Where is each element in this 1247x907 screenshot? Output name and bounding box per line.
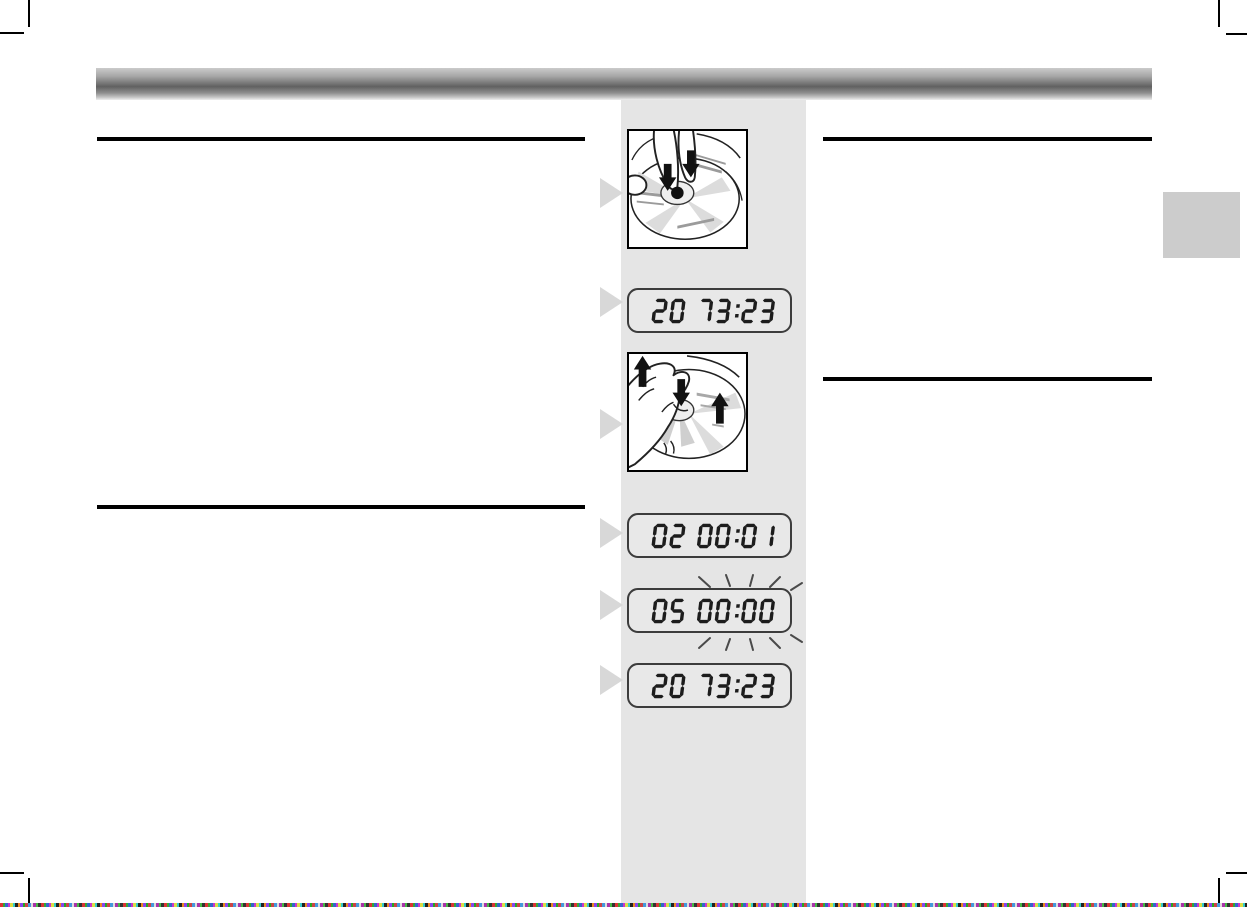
header-bar — [96, 68, 1152, 100]
insert-disc-illustration — [627, 129, 748, 249]
lcd-screen — [651, 297, 776, 324]
section-rule — [823, 377, 1152, 381]
section-rule — [97, 505, 585, 509]
remove-disc-art — [629, 354, 746, 470]
lcd-display — [627, 513, 792, 558]
lcd-screen — [651, 522, 776, 549]
seven-segment-readout — [651, 298, 776, 324]
crop-mark — [0, 32, 24, 34]
section-rule — [823, 137, 1152, 141]
step-arrow-icon — [600, 287, 623, 317]
step-arrow-icon — [600, 665, 623, 695]
page-edge-tab — [1163, 192, 1240, 258]
manual-page — [0, 0, 1247, 907]
seven-segment-readout — [651, 673, 776, 699]
insert-disc-art — [629, 131, 746, 247]
crop-mark — [0, 872, 24, 874]
scan-edge-artifact — [0, 903, 1247, 907]
crop-mark — [1218, 0, 1220, 27]
step-arrow-icon — [600, 409, 623, 439]
crop-mark — [1226, 33, 1247, 35]
crop-mark — [1226, 872, 1247, 874]
step-arrow-icon — [600, 518, 623, 548]
step-arrow-icon — [600, 178, 623, 208]
section-rule — [97, 137, 585, 141]
lcd-display — [627, 588, 792, 633]
seven-segment-readout — [651, 598, 776, 624]
lcd-display — [627, 288, 792, 333]
lcd-screen — [651, 597, 776, 624]
crop-mark — [28, 0, 30, 27]
step-arrow-icon — [600, 590, 623, 620]
seven-segment-readout — [651, 523, 776, 549]
lcd-display — [627, 663, 792, 708]
remove-disc-illustration — [627, 352, 748, 472]
lcd-screen — [651, 672, 776, 699]
